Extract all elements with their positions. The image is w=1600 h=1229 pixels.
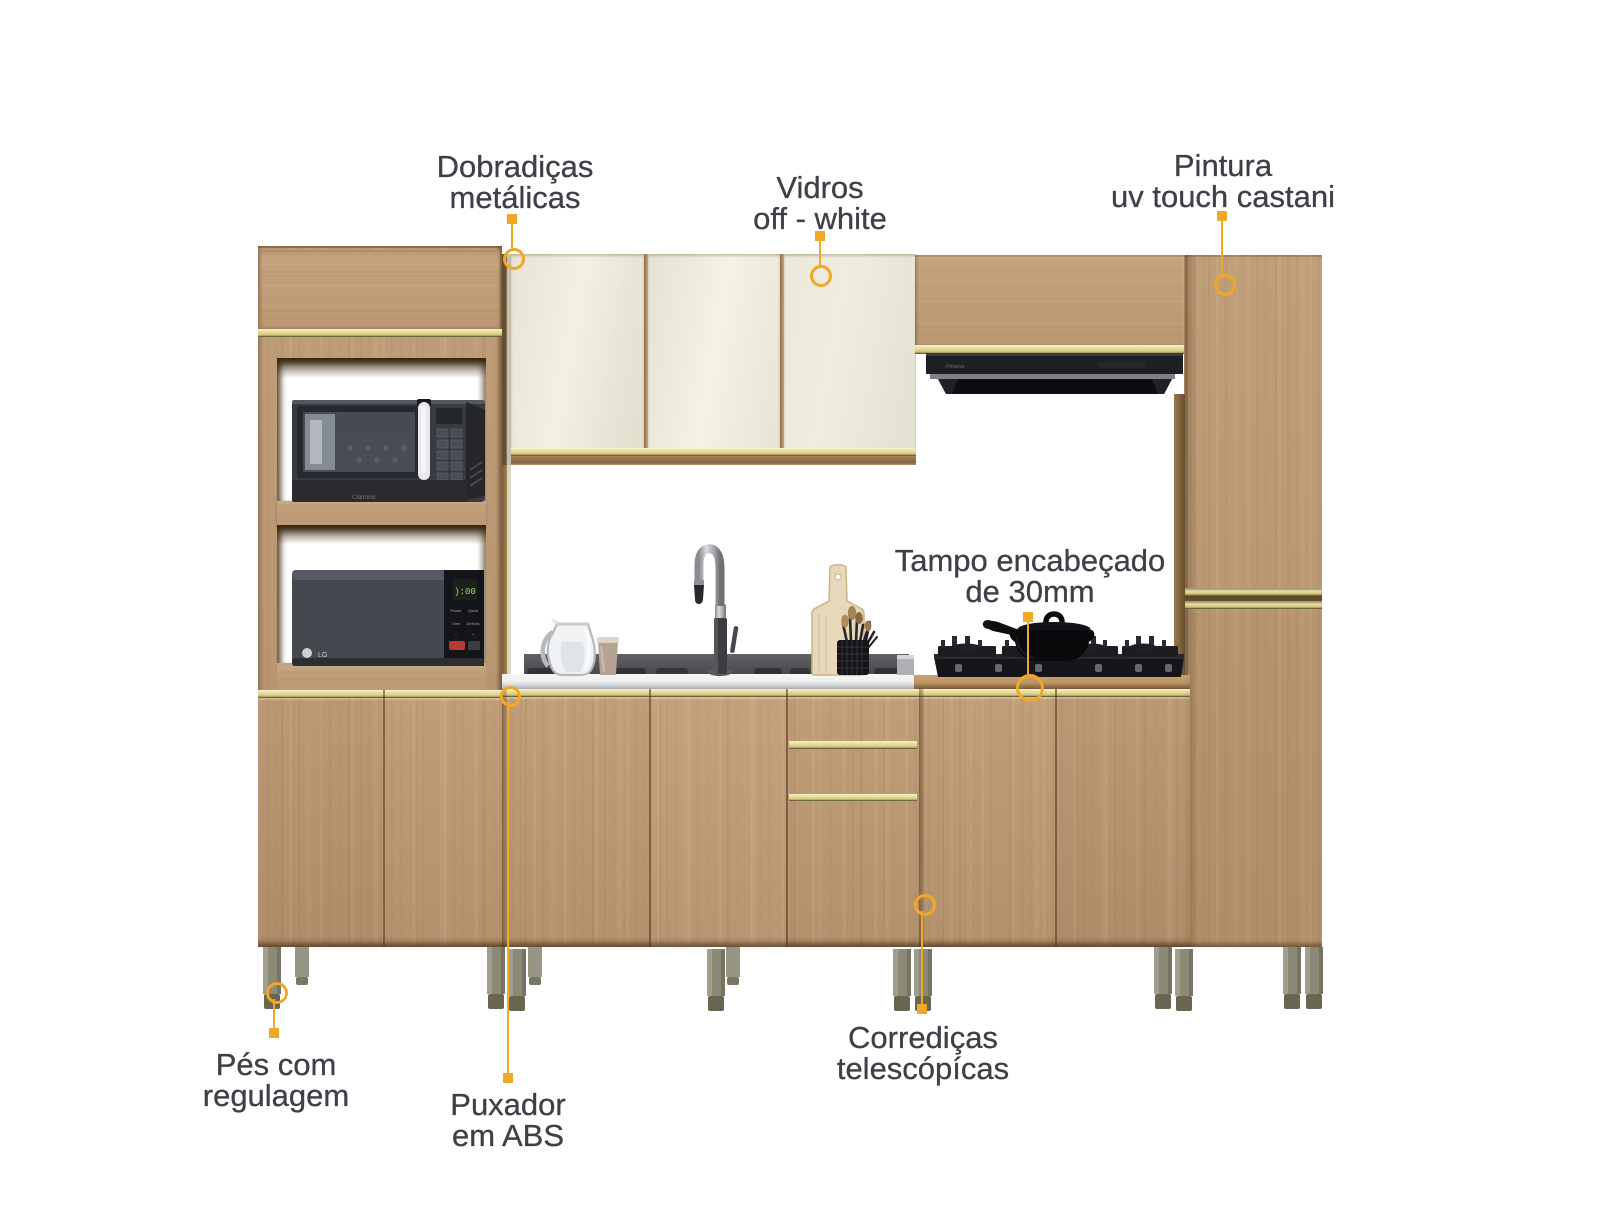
svg-text:Clatronic: Clatronic [352, 495, 376, 501]
svg-text:):00: ):00 [454, 587, 476, 597]
svg-text:Time: Time [452, 621, 462, 626]
svg-text:Power: Power [450, 608, 462, 613]
svg-text:Fhiama: Fhiama [946, 364, 965, 370]
svg-text:LG: LG [318, 652, 327, 659]
svg-text:Defrost: Defrost [467, 621, 481, 626]
svg-text:Quick: Quick [468, 608, 478, 613]
